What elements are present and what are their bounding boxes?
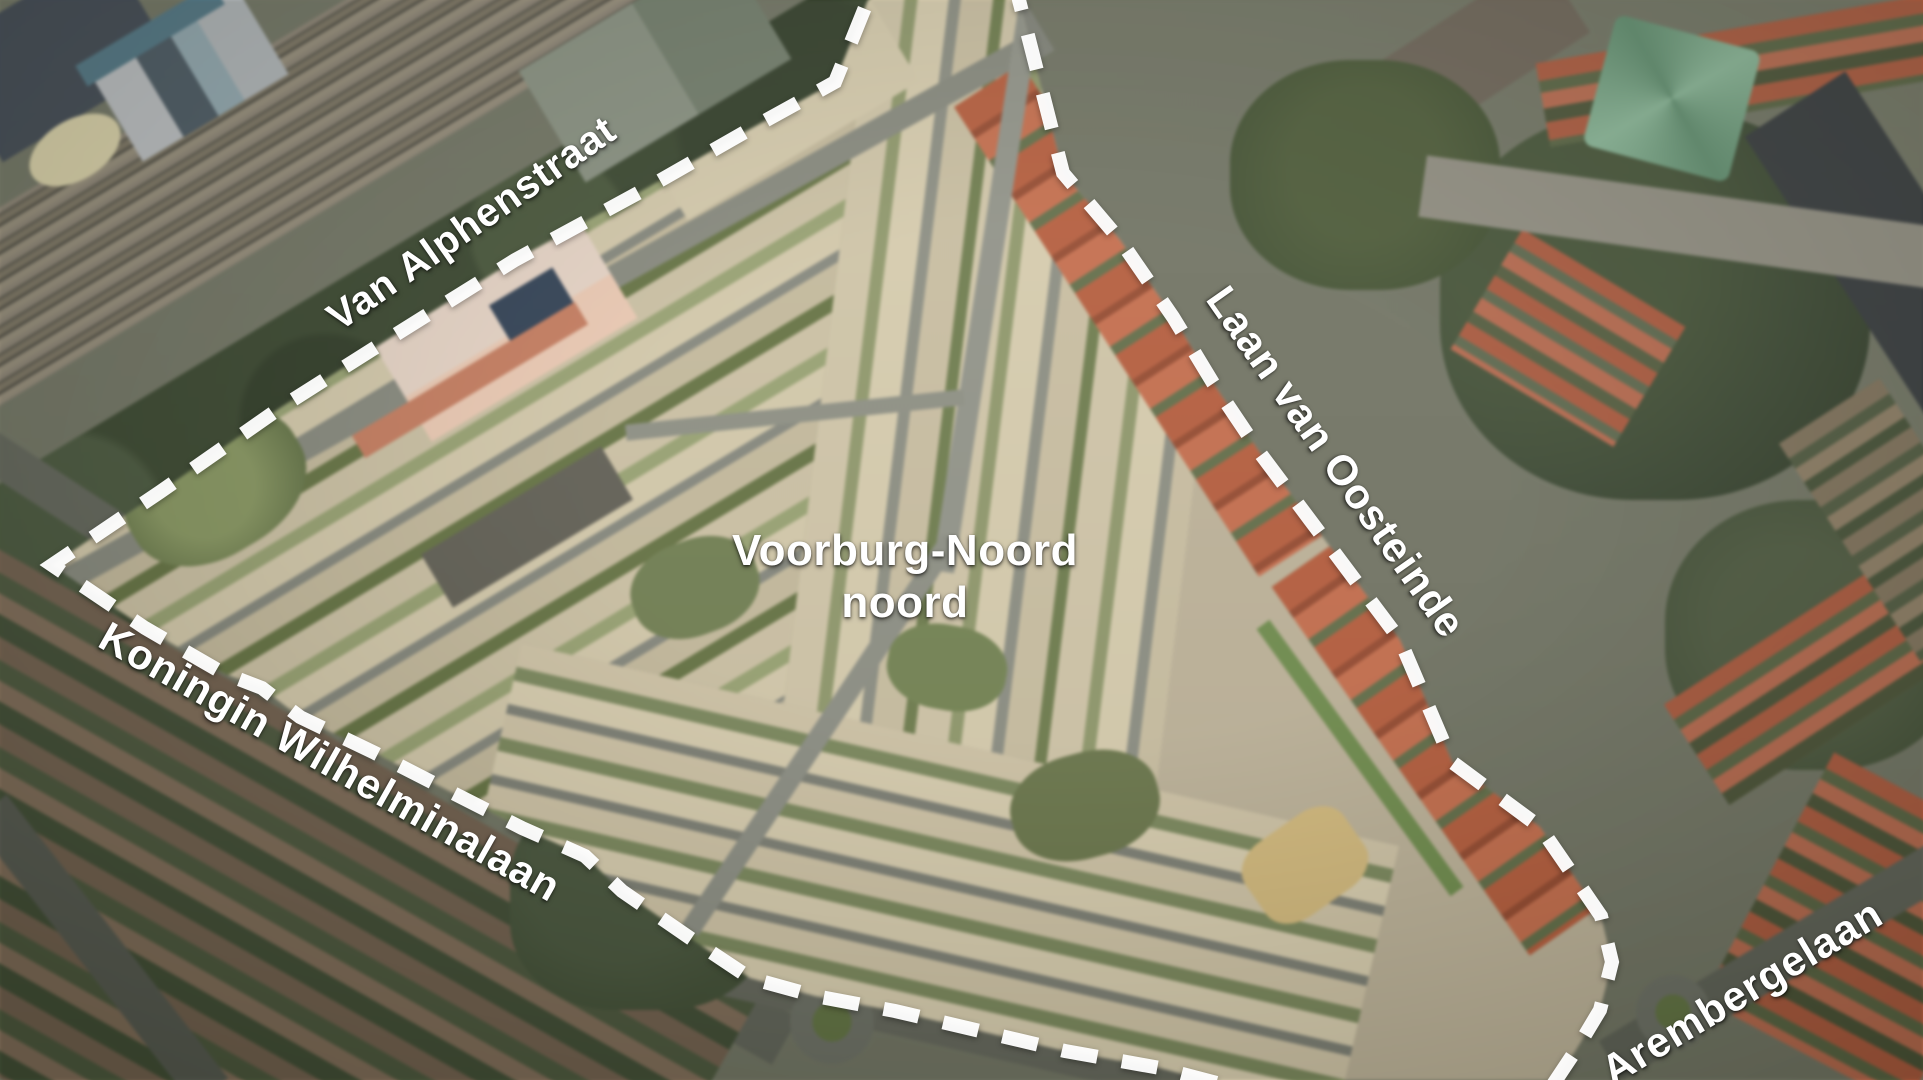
district-name-label: Voorburg-Noord noord: [732, 525, 1078, 629]
district-name-line2: noord: [732, 577, 1078, 629]
district-name-line1: Voorburg-Noord: [732, 525, 1078, 577]
aerial-map-canvas: Van Alphenstraat Laan van Oosteinde Koni…: [0, 0, 1923, 1080]
